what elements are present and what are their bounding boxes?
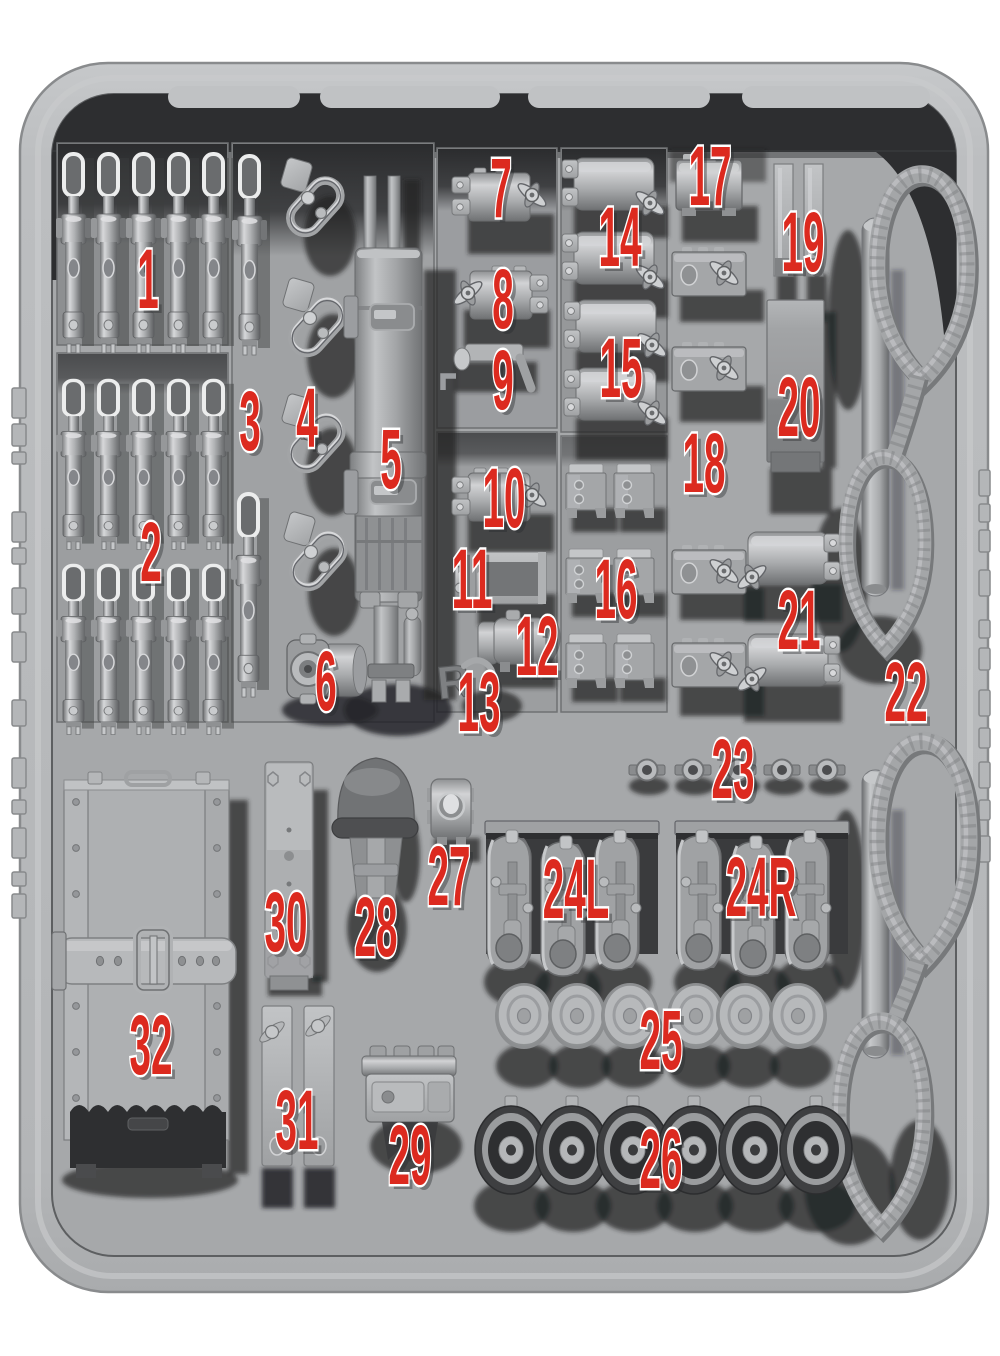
svg-text:2: 2	[140, 505, 161, 599]
svg-text:32: 32	[130, 998, 173, 1092]
svg-text:15: 15	[600, 321, 643, 415]
svg-text:21: 21	[778, 573, 821, 667]
svg-text:28: 28	[355, 880, 398, 974]
svg-text:7: 7	[490, 141, 511, 235]
svg-text:24L: 24L	[543, 842, 610, 936]
svg-text:17: 17	[689, 129, 732, 223]
svg-text:4: 4	[296, 371, 317, 465]
svg-text:23: 23	[712, 722, 755, 816]
svg-text:3: 3	[239, 374, 260, 468]
svg-text:8: 8	[492, 252, 513, 346]
svg-text:29: 29	[389, 1108, 432, 1202]
svg-text:20: 20	[778, 360, 821, 454]
svg-text:5: 5	[380, 412, 401, 506]
svg-text:26: 26	[640, 1112, 683, 1206]
svg-text:1: 1	[137, 232, 158, 326]
svg-text:13: 13	[458, 655, 501, 749]
svg-text:12: 12	[516, 599, 559, 693]
svg-text:25: 25	[640, 993, 683, 1087]
svg-text:31: 31	[276, 1073, 319, 1167]
svg-text:6: 6	[315, 634, 336, 728]
svg-text:27: 27	[428, 829, 471, 923]
svg-text:30: 30	[265, 875, 308, 969]
svg-text:14: 14	[599, 190, 642, 284]
svg-text:22: 22	[885, 645, 928, 739]
svg-text:16: 16	[595, 542, 638, 636]
svg-text:19: 19	[782, 195, 825, 289]
svg-text:18: 18	[683, 416, 726, 510]
svg-text:11: 11	[452, 532, 493, 626]
svg-text:10: 10	[483, 451, 526, 545]
svg-text:24R: 24R	[726, 840, 797, 934]
svg-text:9: 9	[492, 333, 513, 427]
